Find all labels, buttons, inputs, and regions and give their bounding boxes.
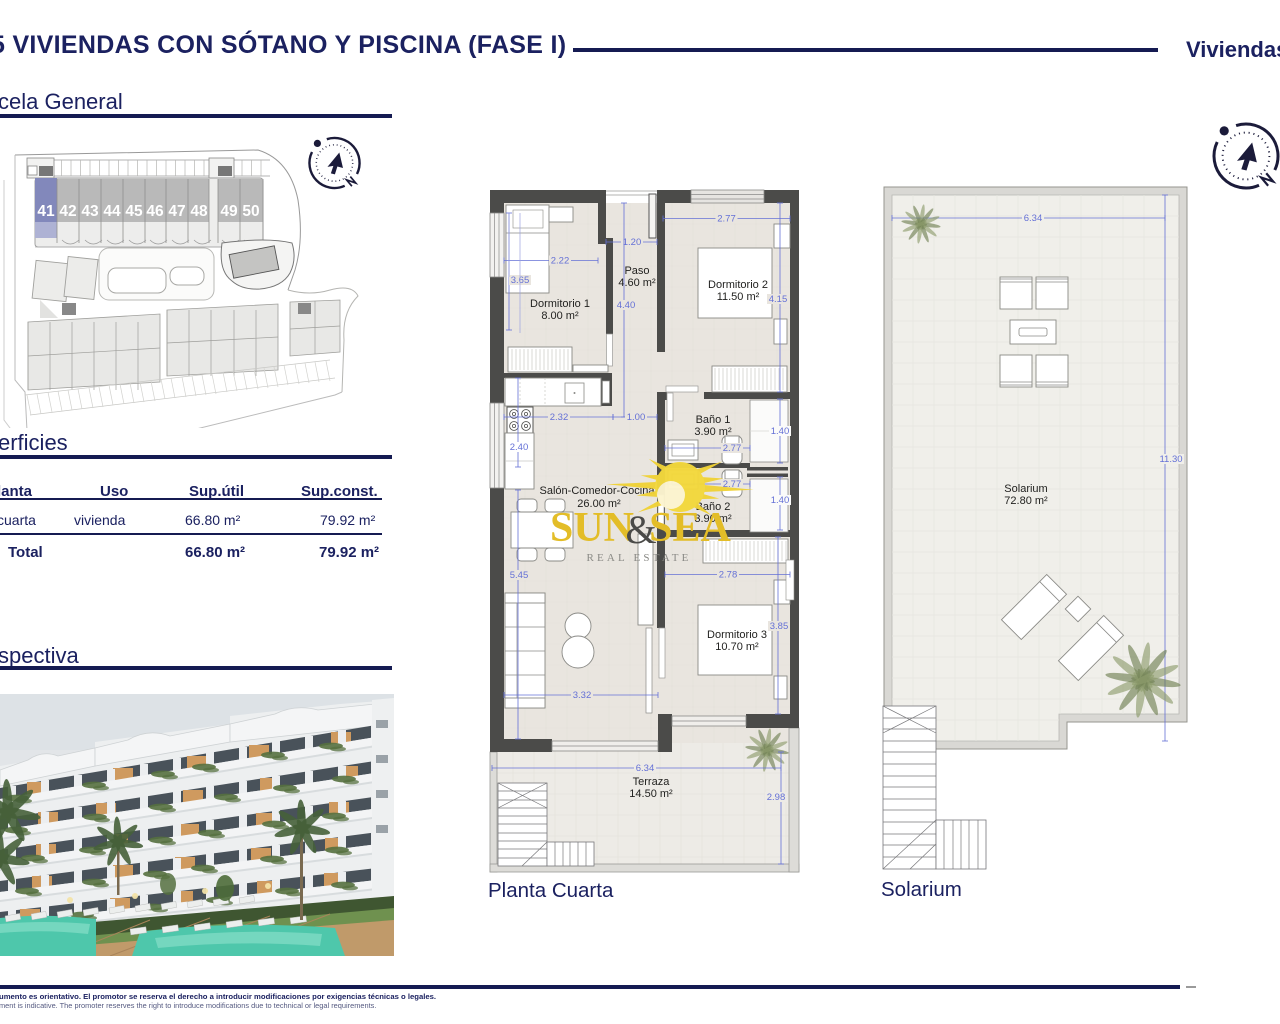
svg-text:44: 44 <box>103 203 121 220</box>
svg-text:2.77: 2.77 <box>723 443 742 454</box>
svg-text:2.78: 2.78 <box>719 570 738 581</box>
svg-text:Baño 1: Baño 1 <box>696 414 731 426</box>
svg-text:Planta Cuarta: Planta Cuarta <box>488 879 614 902</box>
svg-text:2.77: 2.77 <box>717 214 736 225</box>
svg-text:2.22: 2.22 <box>551 256 570 267</box>
svg-text:45: 45 <box>125 203 143 220</box>
svg-text:4.40: 4.40 <box>617 300 636 311</box>
svg-text:Dormitorio 1: Dormitorio 1 <box>530 298 590 310</box>
svg-text:REAL ESTATE: REAL ESTATE <box>586 552 691 564</box>
svg-text:2.98: 2.98 <box>767 792 786 803</box>
svg-text:6.34: 6.34 <box>636 763 655 774</box>
svg-text:1.20: 1.20 <box>623 237 642 248</box>
svg-text:42: 42 <box>59 203 76 220</box>
svg-text:41: 41 <box>37 203 55 220</box>
svg-text:Dormitorio 2: Dormitorio 2 <box>708 279 768 291</box>
svg-text:SUN: SUN <box>550 505 634 551</box>
svg-text:72.80 m²: 72.80 m² <box>1004 495 1048 507</box>
svg-text:11.50 m²: 11.50 m² <box>717 291 760 303</box>
svg-text:48: 48 <box>190 203 208 220</box>
svg-text:Dormitorio 3: Dormitorio 3 <box>707 629 767 641</box>
svg-text:2.32: 2.32 <box>550 412 569 423</box>
svg-text:6.34: 6.34 <box>1024 213 1043 224</box>
svg-text:2.40: 2.40 <box>510 442 529 453</box>
svg-text:43: 43 <box>81 203 99 220</box>
svg-text:Solarium: Solarium <box>1004 483 1047 495</box>
svg-text:50: 50 <box>242 203 259 220</box>
svg-text:1.40: 1.40 <box>771 495 790 506</box>
svg-text:10.70 m²: 10.70 m² <box>715 641 759 653</box>
svg-text:Paso: Paso <box>624 265 649 277</box>
svg-text:8.00 m²: 8.00 m² <box>541 310 579 322</box>
svg-text:Terraza: Terraza <box>633 776 671 788</box>
svg-text:Solarium: Solarium <box>881 878 962 901</box>
svg-text:47: 47 <box>168 203 185 220</box>
svg-text:3.85: 3.85 <box>770 621 789 632</box>
svg-text:46: 46 <box>146 203 164 220</box>
svg-text:4.15: 4.15 <box>769 294 788 305</box>
svg-text:49: 49 <box>220 203 238 220</box>
svg-text:3.90 m²: 3.90 m² <box>694 426 732 438</box>
svg-text:SEA: SEA <box>649 505 731 551</box>
svg-text:11.30: 11.30 <box>1159 454 1182 465</box>
svg-text:14.50 m²: 14.50 m² <box>629 788 673 800</box>
svg-text:5.45: 5.45 <box>510 570 529 581</box>
svg-text:1.40: 1.40 <box>771 426 790 437</box>
svg-text:1.00: 1.00 <box>627 412 646 423</box>
svg-text:3.32: 3.32 <box>573 690 592 701</box>
